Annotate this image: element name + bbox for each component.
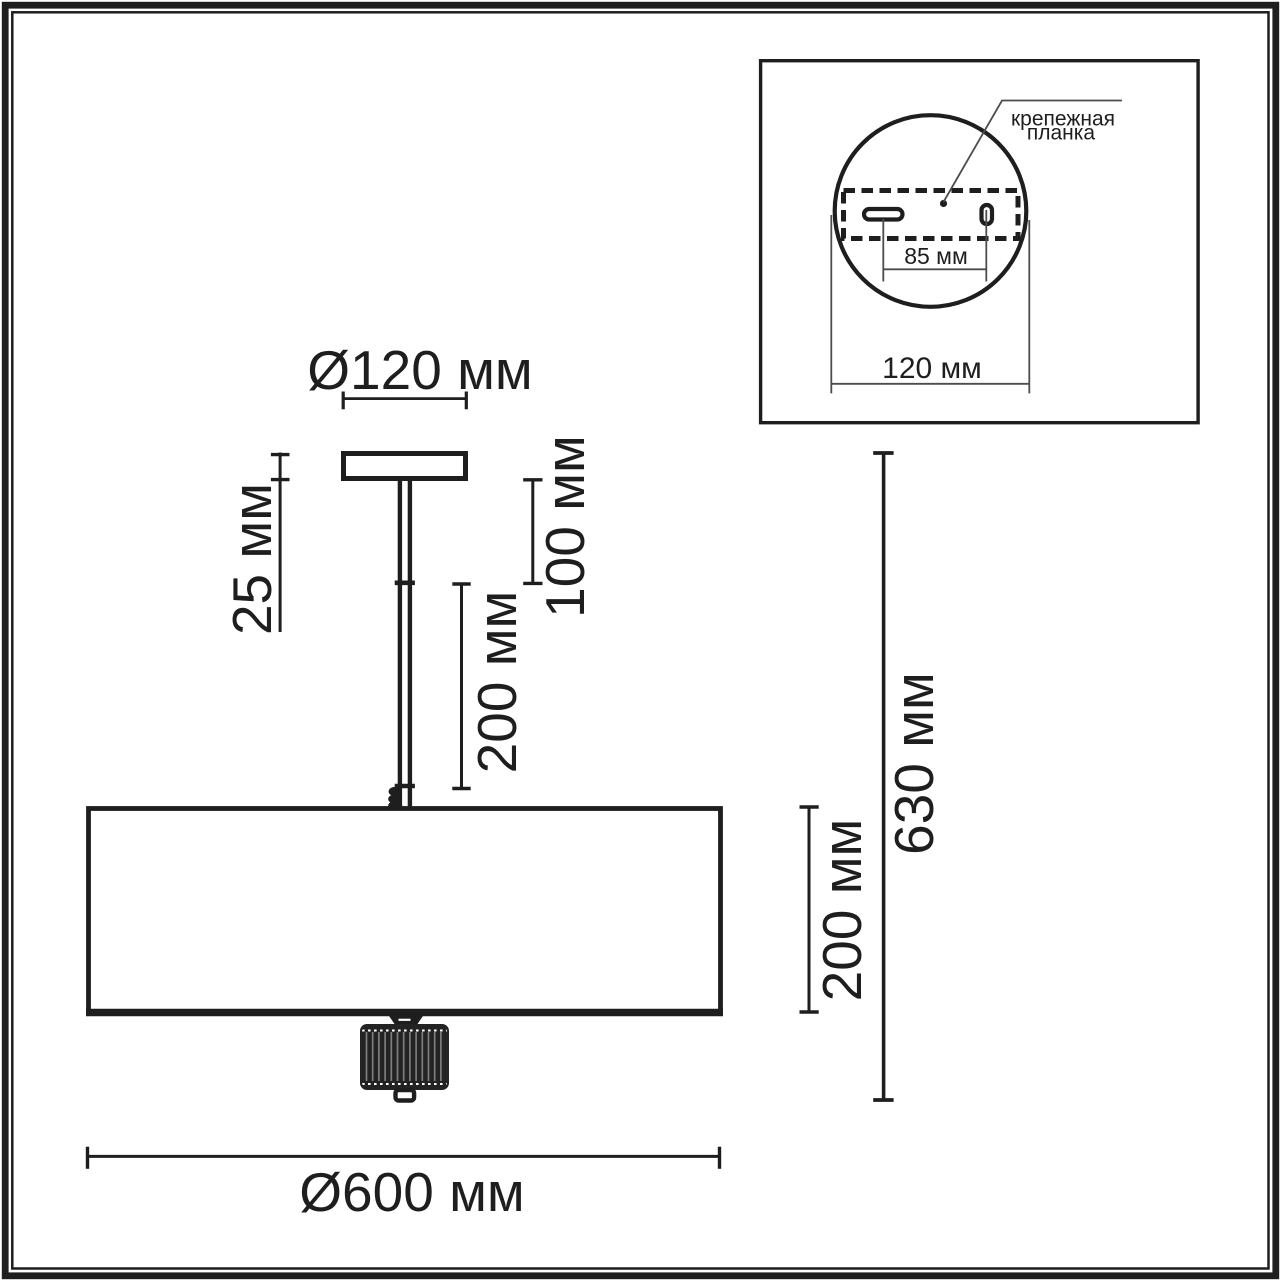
svg-text:85 мм: 85 мм [904, 243, 968, 269]
svg-text:200 мм: 200 мм [466, 591, 528, 774]
svg-text:630 мм: 630 мм [883, 672, 945, 855]
svg-text:Ø600 мм: Ø600 мм [299, 1161, 524, 1223]
svg-text:120 мм: 120 мм [882, 352, 982, 385]
svg-text:100 мм: 100 мм [534, 435, 596, 618]
svg-text:планка: планка [1027, 122, 1096, 145]
svg-text:200 мм: 200 мм [811, 819, 873, 1002]
svg-text:Ø120 мм: Ø120 мм [307, 339, 532, 401]
svg-text:25 мм: 25 мм [221, 483, 283, 635]
